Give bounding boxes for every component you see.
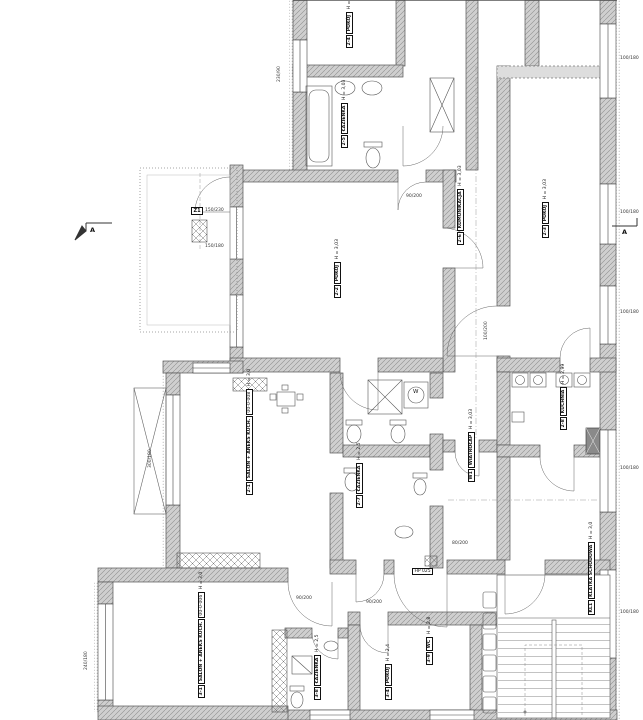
room-name: WC xyxy=(426,637,433,650)
reference-lines xyxy=(200,66,597,500)
room-height: H = 2,5 xyxy=(315,635,320,653)
room-label-2-1: 2-1 SALON + ANEKS KUCH. 00-0-008 H = 3,0 xyxy=(246,369,253,495)
kitchen-counter xyxy=(177,553,260,568)
hp-hatch-box xyxy=(425,556,437,566)
zone-marker: Z1 xyxy=(191,207,203,215)
toilet-tank xyxy=(364,142,382,147)
dim-label: 100/180 xyxy=(620,310,639,315)
dim-label: 150/230 xyxy=(205,208,224,213)
dim-label: 100/180 xyxy=(620,610,639,615)
room-height: H = 3,03 xyxy=(347,0,352,9)
dim-label: 240/180 xyxy=(84,651,89,670)
bathtub xyxy=(306,86,332,166)
room-height: H = 3,03 xyxy=(458,165,463,185)
room-height: H = 3,03 xyxy=(342,80,347,100)
room-name: ŁAZIENKA xyxy=(314,655,321,686)
room-height: H = 3,03 xyxy=(543,179,548,199)
sink xyxy=(395,526,413,538)
room-label-2-3: 2-3 POKÓJ H = 3,03 xyxy=(542,179,549,238)
room-name: POKÓJ xyxy=(385,664,392,685)
dim-label: 90/200 xyxy=(296,596,312,601)
room-tag: 3-8 xyxy=(314,687,321,700)
room-tag: 2-6 xyxy=(457,232,464,245)
room-height: H = 3,0 xyxy=(589,522,594,540)
sink xyxy=(324,641,338,651)
room-name: KUCHNIA xyxy=(560,387,567,416)
dim-label: 150/180 xyxy=(205,244,224,249)
section-label-right: A xyxy=(622,228,627,236)
dim-label: 100/180 xyxy=(620,56,639,61)
room-label-2-6: 2-6 KOMUNIKACJA H = 3,03 xyxy=(457,165,464,245)
dim-label: 90/200 xyxy=(366,600,382,605)
bidet xyxy=(391,425,405,443)
room-height: H = 2,8 xyxy=(427,617,432,635)
room-label-stairs: KL1 KLATKA SCHODOWA H = 3,0 xyxy=(588,522,595,615)
room-name: KOMUNIKACJA xyxy=(457,189,464,231)
room-label-3-9: 3-9 WC H = 2,8 xyxy=(426,617,433,665)
hp-marker: HP 025 xyxy=(412,568,433,575)
room-height: H = 3,03 xyxy=(469,409,474,429)
room-label-2-8: 2-8 KUCHNIA H = 2,99 xyxy=(560,364,567,430)
dim-label: 80/200 xyxy=(452,541,468,546)
room-tag: 3-1 xyxy=(198,685,205,698)
room-label-2-5: 2-5 ŁAZIENKA H = 3,03 xyxy=(341,80,348,148)
room-label-2-7: 2-7 ŁAZIENKA H = 2,5 xyxy=(356,443,363,509)
toilet xyxy=(347,425,361,443)
room-label-w1: W1 WIATROŁAP H = 3,03 xyxy=(468,409,475,482)
table xyxy=(277,392,295,406)
room-tag: KL1 xyxy=(588,600,595,615)
room-tag: 2-8 xyxy=(560,417,567,430)
room-tag: 3-9 xyxy=(426,652,433,665)
room-label-3-4: 3-4 POKÓJ H = 2,4 xyxy=(385,644,392,700)
room-tag: 2-3 xyxy=(542,225,549,238)
room-code: 00-0-006 xyxy=(198,592,205,618)
zone-hatch-box xyxy=(192,220,207,242)
room-name: SALON + ANEKS KUCH. xyxy=(246,416,253,481)
floor-plan: 2-4 POKÓJ H = 3,03 2-5 ŁAZIENKA H = 3,03… xyxy=(0,0,643,720)
room-name: POKÓJ xyxy=(542,202,549,223)
dim-label: 300/180 xyxy=(148,449,153,468)
bathtub-inner xyxy=(309,90,329,162)
terrace xyxy=(140,168,237,332)
room-label-3-1: 3-1 SALON + ANEKS KUCH. 00-0-006 H = 3,0 xyxy=(198,572,205,698)
room-name: ŁAZIENKA xyxy=(341,103,348,134)
room-tag: 2-4 xyxy=(346,35,353,48)
room-code: 00-0-008 xyxy=(246,389,253,415)
room-name: SALON + ANEKS KUCH. xyxy=(198,619,205,684)
dim-label: 100/180 xyxy=(620,466,639,471)
dim-label: 100/180 xyxy=(620,210,639,215)
room-height: H = 3,0 xyxy=(247,369,252,387)
room-label-2-4: 2-4 POKÓJ H = 3,03 xyxy=(346,0,353,48)
washer-letter: W xyxy=(413,389,418,395)
kitchen-table xyxy=(512,412,524,422)
room-height: H = 2,99 xyxy=(561,364,566,384)
wardrobe xyxy=(272,630,287,712)
room-tag: 2-1 xyxy=(246,482,253,495)
room-name: POKÓJ xyxy=(334,262,341,283)
room-height: H = 3,03 xyxy=(335,239,340,259)
duct-shaft xyxy=(586,428,600,454)
room-label-2-2: 2-2 POKÓJ H = 3,03 xyxy=(334,239,341,298)
sink xyxy=(362,81,382,95)
room-name: WIATROŁAP xyxy=(468,432,475,467)
toilet xyxy=(414,479,426,495)
wall-over-dashed xyxy=(497,66,601,78)
room-height: H = 2,5 xyxy=(357,443,362,461)
room-tag: 2-7 xyxy=(356,495,363,508)
room-height: H = 3,0 xyxy=(199,572,204,590)
floor-plan-linework xyxy=(0,0,643,720)
dim-label: 90/200 xyxy=(406,194,422,199)
room-name: KLATKA SCHODOWA xyxy=(588,542,595,599)
toilet xyxy=(366,148,380,168)
section-label-left: A xyxy=(90,226,95,234)
room-name: ŁAZIENKA xyxy=(356,463,363,494)
room-name: POKÓJ xyxy=(346,12,353,33)
room-height: H = 2,4 xyxy=(386,644,391,662)
room-tag: 2-5 xyxy=(341,135,348,148)
room-label-3-8: 3-8 ŁAZIENKA H = 2,5 xyxy=(314,635,321,701)
toilet xyxy=(291,692,303,708)
dim-label: 100/200 xyxy=(484,321,489,340)
dim-label: 230/90 xyxy=(277,66,282,82)
room-tag: 3-4 xyxy=(385,687,392,700)
room-tag: 2-2 xyxy=(334,285,341,298)
mailboxes xyxy=(483,592,496,713)
room-tag: W1 xyxy=(468,469,475,482)
washing-machine xyxy=(404,382,428,408)
